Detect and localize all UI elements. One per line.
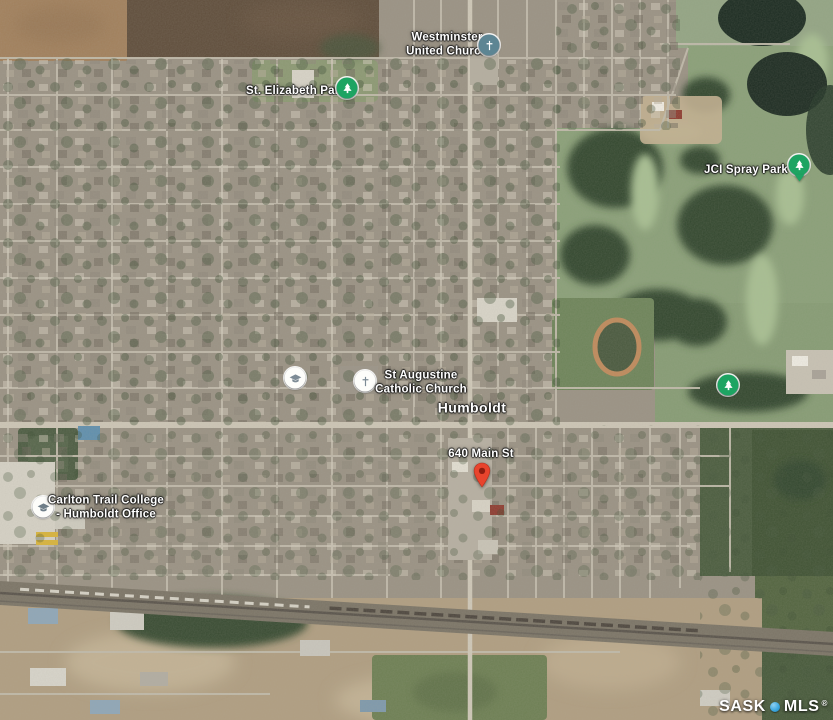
city-label-text: Humboldt <box>438 399 507 417</box>
park-pin-icon[interactable] <box>789 155 810 176</box>
tree-glyph <box>721 378 735 392</box>
poi-label-line: Carlton Trail College <box>48 494 164 508</box>
red-pin-glyph <box>473 462 491 488</box>
poi-label-st-elizabeth-park[interactable]: St. Elizabeth Park <box>246 84 346 98</box>
cross-glyph <box>482 38 496 52</box>
listing-map[interactable]: Westminster United Church St. Elizabeth … <box>0 0 833 720</box>
church-icon[interactable] <box>479 35 500 56</box>
red-location-pin[interactable] <box>473 462 491 488</box>
saskmls-watermark: SASK MLS ® <box>719 698 828 716</box>
cross-glyph <box>358 374 372 388</box>
satellite-basemap <box>0 0 833 720</box>
address-label-640-main-st: 640 Main St <box>448 447 513 461</box>
poi-label-westminster-united-church[interactable]: Westminster United Church <box>406 31 488 60</box>
poi-label-jci-spray-park[interactable]: JCI Spray Park <box>704 163 788 177</box>
address-label-text: 640 Main St <box>448 447 513 461</box>
poi-label-st-augustine-catholic-church[interactable]: St Augustine Catholic Church <box>375 369 467 398</box>
poi-label-carlton-trail-college[interactable]: Carlton Trail College - Humboldt Office <box>48 494 164 523</box>
school-icon[interactable] <box>285 368 306 389</box>
poi-label-line: Catholic Church <box>375 383 467 397</box>
poi-label-line: United Church <box>406 45 488 59</box>
poi-label-line: Westminster <box>406 31 488 45</box>
poi-label-line: - Humboldt Office <box>48 508 164 522</box>
city-label-humboldt[interactable]: Humboldt <box>438 399 507 417</box>
saskmls-logo-icon <box>770 702 780 712</box>
graduation-cap-glyph <box>288 371 302 385</box>
park-icon[interactable] <box>337 78 358 99</box>
poi-label-line: St Augustine <box>375 369 467 383</box>
poi-label-line: St. Elizabeth Park <box>246 84 346 98</box>
watermark-prefix: SASK <box>719 698 766 716</box>
watermark-suffix: MLS <box>784 698 820 716</box>
tree-glyph <box>792 158 806 172</box>
tree-glyph <box>340 81 354 95</box>
park-icon[interactable] <box>718 375 739 396</box>
registered-trademark-symbol: ® <box>822 699 829 708</box>
church-icon[interactable] <box>355 371 376 392</box>
poi-label-line: JCI Spray Park <box>704 163 788 177</box>
